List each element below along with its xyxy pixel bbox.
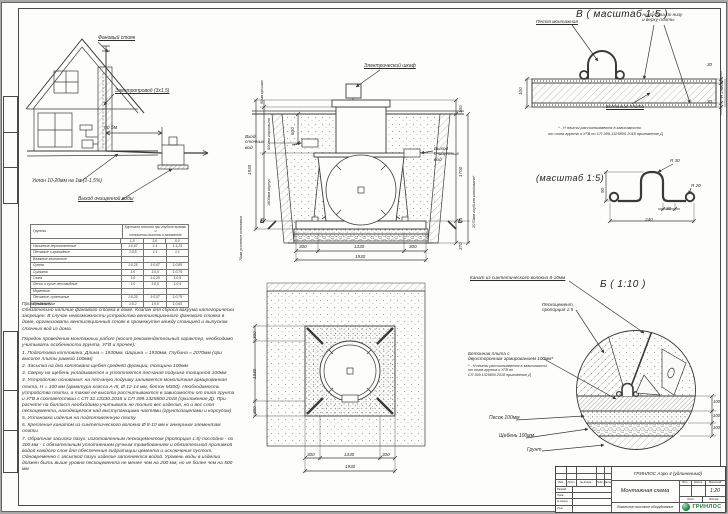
scale-value: 1:20 — [705, 485, 725, 496]
table-cell: Супесь — [31, 263, 122, 268]
clean-water-out-label: Выход очищенной воды — [78, 197, 134, 203]
notes-column: Примечание: Обязательно наличие фанового… — [22, 302, 235, 477]
detail-v-dim-30-bottom: 30 — [707, 99, 712, 104]
dim-body-1800: 1800мм корпус — [266, 179, 271, 206]
detail-v-dim-30-top: 30 — [707, 62, 712, 67]
plan-dim-1330-left: 1330 — [252, 369, 257, 379]
dim-1930-height: 1930 — [247, 165, 252, 175]
dim-300-right: 300 — [409, 244, 417, 249]
table-cell: Влажные глинистые: — [31, 257, 122, 262]
logo-globe-icon — [682, 503, 690, 511]
dim-pit-depth: 2070мм глубина котлована* — [471, 176, 476, 228]
dim-1930-width: 1930 — [355, 254, 365, 259]
drawing-sheet-stage: Фановый стояк Электропровод (3х1,5) по 5… — [0, 0, 728, 514]
table-cell: 1:0,25 — [122, 263, 144, 268]
margin-box-top — [3, 96, 18, 204]
order-item: 7. Обратная засыпка пазух: изготовленным… — [22, 437, 235, 474]
order-item: 4. Устройство основания: на песчаную под… — [22, 378, 235, 415]
soils-table-rows: Насыпные неуплотненные1:0,671:11:1,25Пес… — [31, 243, 188, 307]
soils-table: Грунты Крутизна откосов при глубине выем… — [30, 224, 189, 308]
table-cell — [144, 257, 166, 262]
mounting-loop-label: Петля монтажная — [536, 19, 578, 24]
loop-dim-r20: R 20 — [691, 183, 701, 188]
table-cell: 1:0,75 — [167, 270, 188, 275]
table-cell: Суглинок — [31, 270, 122, 275]
dim-base-70: 70мм усиление основания — [239, 216, 243, 261]
table-row: Песчаные и гравийные1:0,51:11:1 — [31, 249, 188, 255]
pescocement-label: Пескоцемент,пропорция 1:5 — [542, 302, 574, 313]
plan-dim-1330-b: 1330 — [344, 452, 354, 457]
detail-v-dim-h: Н плиты* — [719, 79, 724, 98]
concrete-plate-label: Бетонная плита — [606, 104, 644, 109]
plan-dim-300-bl: 300 — [307, 452, 315, 457]
table-row: Супесь1:0,251:0,671:0,85 — [31, 262, 188, 268]
depth-col-3: 5,0 — [166, 239, 188, 243]
margin-box-bottom — [3, 331, 18, 473]
inlet-label: Входсточныхвод — [245, 134, 264, 150]
detail-b-dim-100-3: 100 — [713, 425, 720, 430]
electric-wire-label: Электропровод (3х1,5) — [115, 89, 169, 95]
table-cell: 1:0 — [122, 282, 144, 287]
depth-col-1: 1,5 — [121, 239, 144, 243]
order-item: 3. Сверху на щебень укладывается и уплот… — [22, 371, 235, 377]
table-cell: 1:0,67 — [144, 263, 166, 268]
dim-lid-60: 60мм крышка — [260, 80, 264, 104]
table-cell: 1:1 — [144, 250, 166, 255]
table-cell: 1:0 — [122, 270, 144, 275]
plan-dim-300-top: 300 — [252, 331, 257, 339]
plan-dim-300-br: 300 — [382, 452, 390, 457]
detail-v-drawing — [522, 9, 727, 167]
table-cell: 1:0,25 — [144, 276, 166, 281]
soil-label: Грунт — [527, 448, 542, 454]
table-cell: 1:1,25 — [167, 244, 188, 249]
rev-col-doc: № докум. — [576, 479, 596, 486]
rev-col-izm: Изм. — [556, 479, 566, 486]
dim-1330: 1330 — [354, 244, 364, 249]
outlet-label: Выходочищенныхвод — [434, 146, 459, 162]
dim-370: 370 — [458, 242, 463, 250]
detail-v-dim-100: 100 — [518, 87, 523, 95]
order-item: 5. Установка изделия на подготовленную п… — [22, 416, 235, 422]
table-cell: 1:0,25 — [122, 295, 144, 300]
table-cell: Песчаные, супесчаные — [31, 295, 122, 300]
order-title: Порядок проведения монтажных работ (носи… — [22, 337, 235, 349]
cabinet-label: Электрический шкаф — [364, 64, 416, 70]
table-cell: Моренные: — [31, 289, 122, 294]
doc-name: Монтажная схема — [611, 480, 679, 502]
loop-detail-title: (масштаб 1:5) — [536, 173, 604, 183]
depth-col-2: 3,0 — [144, 239, 167, 243]
table-cell: 1:0,5 — [144, 270, 166, 275]
order-block: Порядок проведения монтажных работ (носи… — [22, 337, 235, 474]
plan-dim-300-bottom: 300 — [252, 406, 257, 414]
role-utv: Утв. — [556, 505, 573, 512]
table-row: Влажные глинистые: — [31, 256, 188, 262]
table-cell — [144, 289, 166, 294]
loop-geometry-drawing — [540, 151, 728, 246]
soils-col1-header: Грунты — [31, 225, 123, 238]
table-cell: 1:0,5 — [167, 282, 188, 287]
table-cell — [167, 289, 188, 294]
company-line: Локальное очистное оборудование — [611, 502, 679, 512]
table-cell: Насыпные неуплотненные — [31, 244, 122, 249]
table-cell: 1:1 — [144, 244, 166, 249]
rebar-label: Арматура по низуи верху плиты — [642, 12, 682, 23]
loop-dim-30: 30 — [666, 206, 671, 211]
remark-block: Примечание: Обязательно наличие фанового… — [22, 302, 235, 333]
lit-header: Лит. — [679, 480, 691, 485]
table-row: Песчаные, супесчаные1:0,251:0,571:0,75 — [31, 294, 188, 300]
soils-col2-header: Крутизна откосов при глубине выемки иотн… — [123, 225, 188, 238]
remark-text: Обязательно наличие фанового стояка в до… — [22, 308, 235, 333]
table-cell: 1:0,75 — [167, 295, 188, 300]
detail-b-dim-100-1: 100 — [713, 399, 720, 404]
vent-stack-label: Фановый стояк — [98, 36, 135, 42]
soils-table-header: Грунты Крутизна откосов при глубине выем… — [31, 225, 188, 238]
loop-dim-240: 240 — [645, 217, 653, 222]
dim-100-above: 100 — [458, 105, 463, 113]
product-name: ГРИНЛОС Аэро 4 (удлиненный) — [611, 467, 725, 480]
detail-b-footnote: * - Н плиты рассчитывается в зависимости… — [468, 364, 547, 377]
rev-col-data: Дата — [604, 479, 611, 486]
detail-v-footnote-2: от типа грунта и УГВ по СП 399.1325800.2… — [548, 131, 663, 136]
table-cell: 1:0,85 — [167, 263, 188, 268]
company-logo: ГРИНЛОС — [679, 502, 725, 512]
table-row: Лессы и сухие лессовидные1:01:0,51:0,5 — [31, 281, 188, 287]
detail-b-dim-100-2: 100 — [713, 413, 720, 418]
rev-col-podp: Подп. — [596, 479, 604, 486]
soils-subheader: 1,5 3,0 5,0 — [31, 238, 188, 243]
logo-text: ГРИНЛОС — [692, 504, 721, 510]
gravel-label: Щебень 100мм — [499, 434, 534, 440]
massa-header: Масса — [691, 480, 705, 485]
rope-label: Канат из синтетического волокна 8-10мм — [470, 275, 565, 280]
dim-neck-500: 500мм горловина — [266, 118, 271, 150]
table-cell: Глина — [31, 276, 122, 281]
table-cell: 1:0,57 — [144, 295, 166, 300]
plan-view-drawing — [242, 271, 472, 496]
role-nkontr: Н.контр. — [556, 498, 573, 505]
loop-dim-90: 90 — [600, 188, 605, 193]
table-row: Глина1:01:0,251:0,5 — [31, 275, 188, 281]
rev-col-list: Лист — [566, 479, 576, 486]
loop-dim-r30: R 30 — [670, 158, 680, 163]
table-row: Моренные: — [31, 288, 188, 294]
sheet: Фановый стояк Электропровод (3х1,5) по 5… — [1, 2, 727, 512]
order-item: 6. Крепление канатом из синтетического в… — [22, 423, 235, 435]
section-marker-b-left: Б — [260, 218, 265, 225]
table-row: Суглинок1:01:0,51:0,75 — [31, 269, 188, 275]
sand-label: Песок 100мм — [489, 416, 520, 422]
table-cell: 1:0,5 — [144, 282, 166, 287]
table-cell: 1:0,5 — [122, 250, 144, 255]
table-cell — [122, 289, 144, 294]
table-row: Насыпные неуплотненные1:0,671:11:1,25 — [31, 243, 188, 249]
slope-label: Уклон 10-20мм на 1м (1-1,5%) — [32, 179, 102, 185]
dim-600: 600 — [290, 127, 295, 135]
detail-b-title: Б ( 1:10 ) — [600, 279, 646, 290]
table-cell: Песчаные и гравийные — [31, 250, 122, 255]
table-cell: 1:1 — [167, 250, 188, 255]
table-cell — [122, 257, 144, 262]
dim-1700: 1700 — [458, 167, 463, 177]
table-cell — [167, 257, 188, 262]
table-cell: Лессы и сухие лессовидные — [31, 282, 122, 287]
table-cell: 1:0,67 — [122, 244, 144, 249]
detail-v-footnote-1: * - Н плиты рассчитывается в зависимости — [558, 125, 641, 130]
plate-reinforced-label: Бетонная плита сдвухсторонним армировани… — [468, 351, 553, 362]
dim-300-left: 300 — [299, 244, 307, 249]
table-cell: 1:0,5 — [167, 276, 188, 281]
section-marker-b-right: Б — [458, 218, 463, 225]
title-block: Изм. Лист № докум. Подп. Дата Разраб. Пр… — [555, 466, 726, 513]
order-item: 2. Засыпка на дно котлована щебня средне… — [22, 364, 235, 370]
table-cell: 1:0 — [122, 276, 144, 281]
order-item: 1. Подготовка котлована: Длина = 1930мм,… — [22, 351, 235, 363]
plan-dim-1930-total: 1930 — [345, 464, 355, 469]
per-5m-label: по 5м — [104, 126, 117, 132]
